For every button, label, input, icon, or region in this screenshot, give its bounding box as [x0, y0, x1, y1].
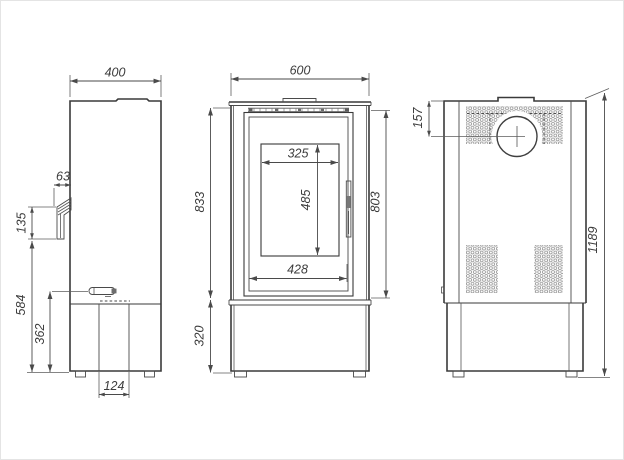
base-height-value: 320 — [193, 326, 207, 347]
front-body-height-dimension: 833 — [193, 108, 230, 298]
side-rear-offset-value: 63 — [56, 170, 70, 184]
door-handle-clip — [347, 196, 351, 208]
glass-height-dimension: 485 — [299, 145, 318, 255]
side-depth-dimension: 400 — [70, 66, 161, 98]
side-foot-left — [76, 371, 86, 377]
glass-width-dimension: 325 — [262, 147, 338, 163]
side-bracket-height-dimension: 135 — [15, 207, 57, 239]
vent-end-cap-left — [249, 109, 253, 112]
glass-height-value: 485 — [299, 190, 313, 211]
front-base-outline — [231, 305, 369, 371]
rear-bracket — [57, 198, 71, 239]
vent-mark — [321, 109, 324, 111]
vent-mark — [298, 109, 301, 111]
top-vent-strip — [248, 108, 349, 111]
door-width-value: 428 — [287, 263, 308, 277]
drawing-svg: 400 63 135 584 362 124 — [1, 1, 624, 460]
side-body-outline — [70, 99, 161, 371]
stove-technical-drawing: 400 63 135 584 362 124 — [0, 0, 624, 460]
back-view: 157 1189 — [411, 89, 610, 378]
side-outlet-height-value: 584 — [14, 295, 28, 316]
side-depth-value: 400 — [105, 66, 126, 80]
side-outlet-height-dimension: 584 — [14, 241, 69, 373]
lever-clip — [112, 289, 117, 294]
vent-end-cap-right — [345, 109, 349, 112]
front-view: 600 833 803 325 485 428 — [193, 64, 391, 378]
side-view: 400 63 135 584 362 124 — [14, 66, 161, 399]
vent-perforation-right — [534, 245, 563, 293]
total-height-value: 1189 — [586, 227, 600, 254]
flue-position-value: 157 — [411, 107, 425, 129]
side-rear-offset-dimension: 63 — [54, 170, 71, 207]
lever-body — [89, 288, 115, 295]
front-width-value: 600 — [290, 64, 311, 78]
glass-width-value: 325 — [288, 147, 309, 161]
side-lever-height-value: 362 — [33, 324, 47, 345]
vent-perforation-left — [466, 245, 498, 293]
back-foot-left — [453, 371, 464, 377]
front-width-dimension: 600 — [231, 64, 369, 97]
side-base-opening-value: 124 — [104, 379, 125, 393]
front-door-height-dimension: 803 — [369, 111, 391, 299]
front-foot-left — [235, 371, 247, 377]
ext-line — [585, 89, 609, 99]
back-foot-right — [566, 371, 577, 377]
vent-mark — [275, 109, 278, 111]
side-bracket-height-value: 135 — [15, 213, 29, 234]
door-width-dimension: 428 — [249, 263, 347, 283]
front-foot-right — [354, 371, 366, 377]
base-height-dimension: 320 — [193, 300, 233, 373]
back-base-outline — [447, 303, 583, 371]
front-door-height-value: 803 — [369, 192, 383, 213]
back-latch-detail — [442, 287, 445, 293]
rear-bracket-outline — [57, 198, 71, 239]
door-handle — [346, 181, 351, 237]
side-base-opening-dimension: 124 — [99, 372, 129, 398]
front-body-height-value: 833 — [193, 192, 207, 213]
side-foot-right — [145, 371, 155, 377]
air-lever — [89, 288, 117, 297]
